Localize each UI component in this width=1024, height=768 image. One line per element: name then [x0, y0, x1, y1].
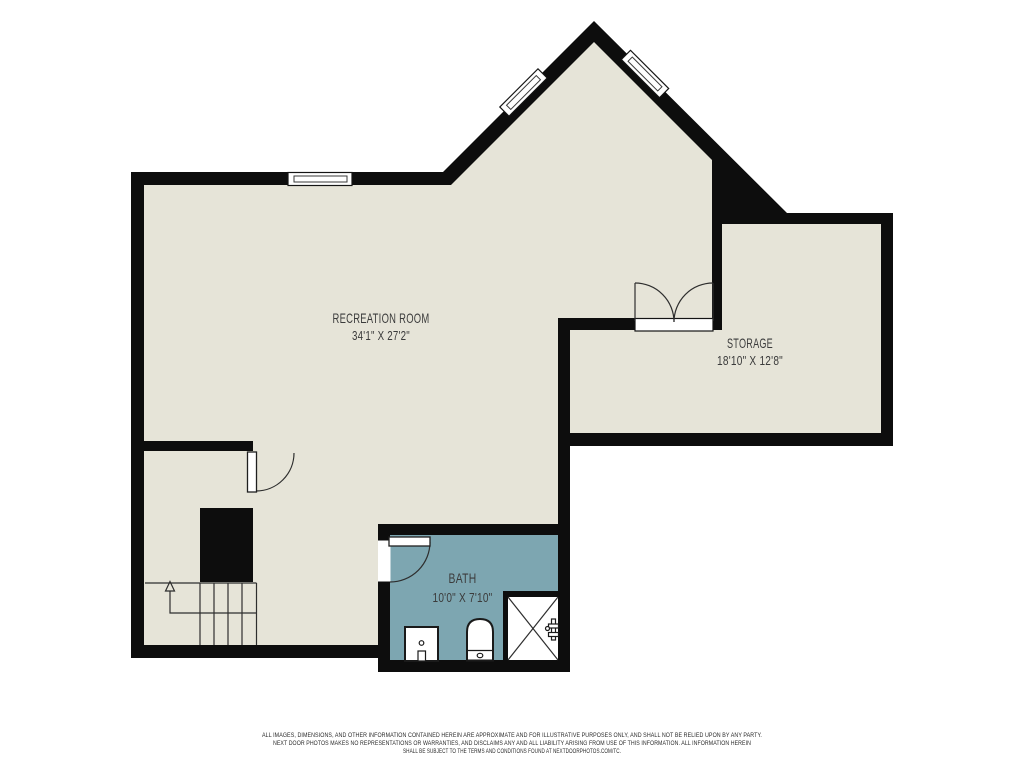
- storage-room-label: STORAGE: [727, 335, 773, 351]
- recreation-room-label: RECREATION ROOM: [333, 310, 430, 326]
- disclaimer-line-1: ALL IMAGES, DIMENSIONS, AND OTHER INFORM…: [262, 732, 762, 739]
- door-leaf: [248, 452, 257, 492]
- floor-plan-page: RECREATION ROOM 34'1" X 27'2" STORAGE 18…: [0, 0, 1024, 768]
- chimney-shaft: [200, 508, 253, 582]
- bath-room-label: BATH: [449, 570, 477, 586]
- stair-room-wall: [131, 441, 253, 451]
- window-top: [288, 173, 352, 186]
- door-leaf: [389, 537, 430, 546]
- toilet: [467, 619, 493, 661]
- recreation-room-dimensions: 34'1" X 27'2": [352, 328, 410, 343]
- sink: [405, 627, 438, 661]
- storage-room-dimensions: 18'10" X 12'8": [717, 353, 783, 368]
- bath-room-dimensions: 10'0" X 7'10": [433, 590, 493, 605]
- disclaimer-line-2: NEXT DOOR PHOTOS MAKES NO REPRESENTATION…: [273, 740, 751, 747]
- shower: [503, 591, 559, 660]
- floor-plan: RECREATION ROOM 34'1" X 27'2" STORAGE 18…: [0, 0, 1024, 768]
- door-opening: [378, 541, 391, 582]
- disclaimer-line-3: SHALL BE SUBJECT TO THE TERMS AND CONDIT…: [403, 748, 621, 755]
